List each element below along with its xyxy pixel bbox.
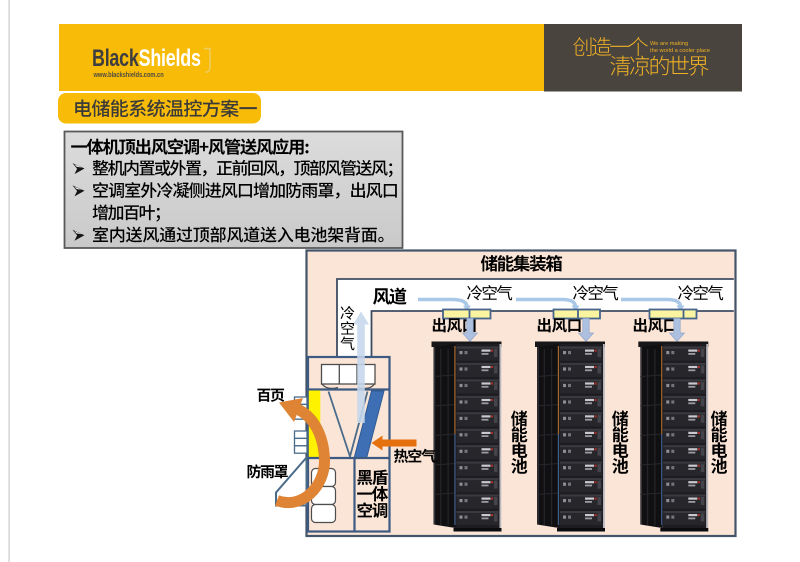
svg-text:We are making: We are making [650, 41, 688, 47]
svg-text:BlackShields: BlackShields [92, 44, 201, 71]
svg-text:www.blackshields.com.cn: www.blackshields.com.cn [93, 71, 164, 79]
svg-text:the world a cooler place: the world a cooler place [650, 48, 710, 54]
